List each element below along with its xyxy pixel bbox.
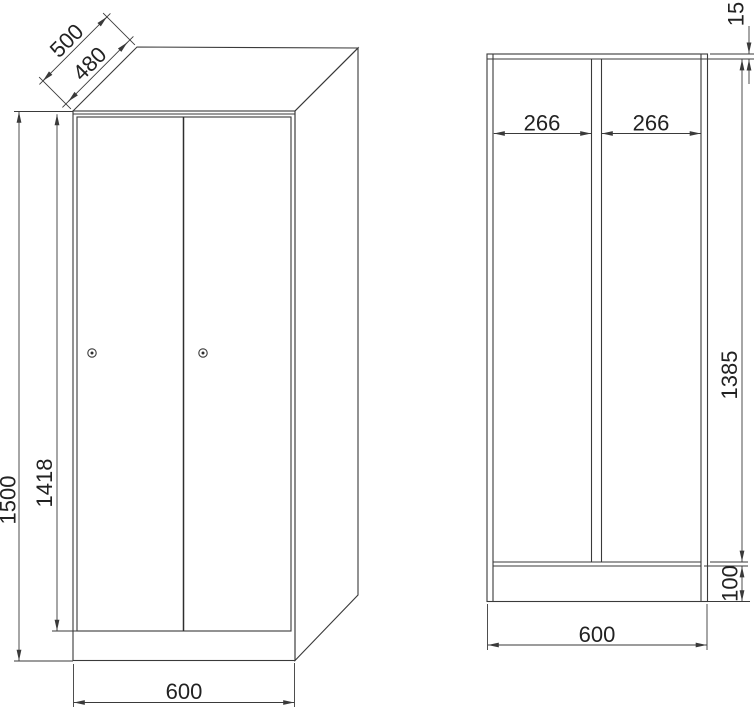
dim-label-section-width: 600 [579,622,616,647]
dim-label-height-total: 1500 [0,476,20,525]
dim-label-top-panel: 15 [723,2,748,26]
locker-technical-drawing: 500 480 1500 1418 600 [0,0,754,707]
dim-label-compartment-left: 266 [524,110,561,135]
dim-label-plinth-height: 100 [717,565,742,602]
dim-label-compartment-right: 266 [633,110,670,135]
dim-label-door-height: 1418 [32,459,57,508]
lock-keyhole-icon [202,352,205,355]
dim-label-front-width: 600 [166,679,203,704]
lock-keyhole-icon [91,352,94,355]
drawing-canvas: 500 480 1500 1418 600 [0,0,754,707]
dim-label-interior-height: 1385 [717,351,742,400]
